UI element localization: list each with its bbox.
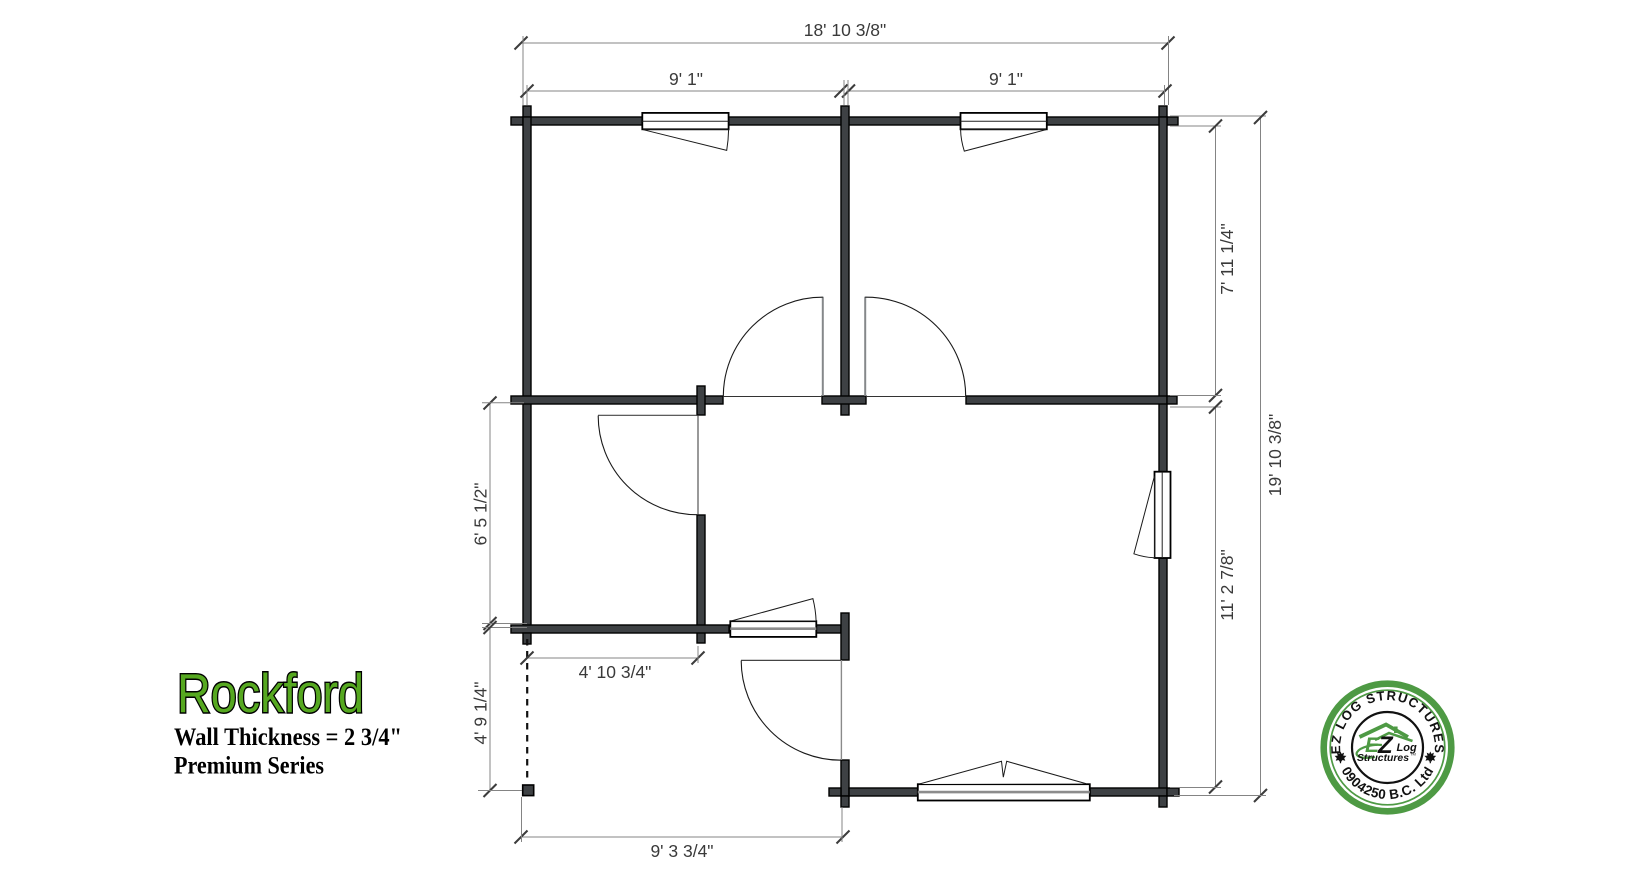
svg-text:Rockford: Rockford (177, 662, 364, 724)
svg-text:11' 2 7/8": 11' 2 7/8" (1217, 549, 1237, 621)
svg-text:7' 11 1/4": 7' 11 1/4" (1217, 223, 1237, 295)
svg-text:9' 3 3/4": 9' 3 3/4" (650, 841, 713, 861)
svg-text:18' 10 3/8": 18' 10 3/8" (804, 20, 887, 40)
svg-text:9' 1": 9' 1" (669, 69, 703, 89)
svg-text:9' 1": 9' 1" (989, 69, 1023, 89)
svg-text:4' 10 3/4": 4' 10 3/4" (579, 662, 652, 682)
svg-text:4' 9 1/4": 4' 9 1/4" (471, 681, 491, 744)
svg-text:Premium Series: Premium Series (174, 753, 324, 780)
svg-text:Structures: Structures (1357, 752, 1409, 764)
svg-text:Wall Thickness = 2 3/4": Wall Thickness = 2 3/4" (174, 724, 402, 751)
svg-text:6' 5 1/2": 6' 5 1/2" (471, 482, 491, 545)
svg-text:19' 10 3/8": 19' 10 3/8" (1265, 414, 1285, 497)
svg-text:TM: TM (1410, 752, 1416, 757)
